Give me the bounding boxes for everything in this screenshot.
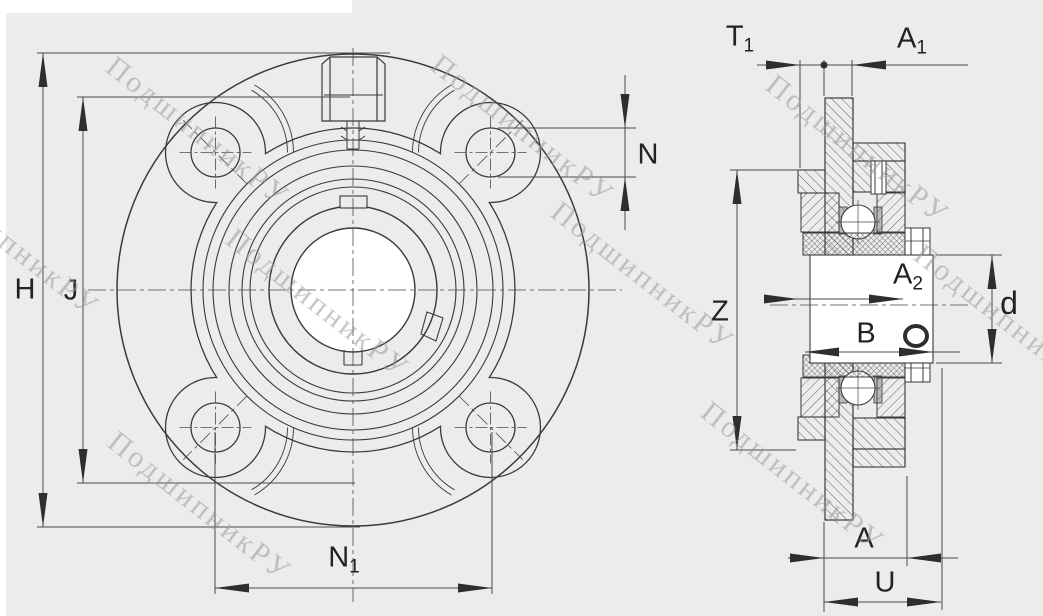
outer-ring-bottom-left: [801, 378, 839, 417]
collar-keyway-tab: [340, 196, 367, 208]
barrel-rim-top: [798, 170, 825, 193]
spigot-block-bottom: [853, 418, 905, 449]
dim-label-T1: T1: [726, 23, 754, 56]
dim-label-A: A: [854, 525, 873, 554]
dim-label-H: H: [15, 276, 36, 305]
dim-label-Z: Z: [711, 298, 729, 327]
dim-label-J: J: [64, 277, 79, 306]
outer-ring-top-left: [801, 193, 839, 232]
dim-label-A1: A1: [897, 25, 927, 58]
setscrew-top: [905, 228, 930, 255]
bearing-unit-drawing: [0, 0, 1043, 616]
dim-label-B: B: [856, 320, 875, 349]
dim-label-N: N: [638, 141, 659, 170]
spigot-top: [853, 143, 905, 161]
cam-notch: [421, 312, 443, 341]
knurl-band-top: [803, 233, 907, 255]
drawing-canvas: H J N N1 T1 A1 Z A2 B d A U ПодшипникРУ …: [0, 0, 1043, 616]
dim-d: [936, 255, 1002, 363]
barrel-rim-bottom: [798, 417, 825, 440]
dim-label-U: U: [875, 569, 896, 598]
housing-lube-hole: [871, 161, 886, 194]
dim-Z: [730, 170, 800, 450]
dim-label-N1: N1: [328, 544, 360, 577]
spigot-bottom: [853, 449, 905, 467]
front-view: [88, 48, 622, 602]
dim-label-A2: A2: [893, 261, 923, 294]
dim-label-d: d: [1000, 287, 1018, 319]
grease-fitting-boss: [322, 57, 385, 121]
